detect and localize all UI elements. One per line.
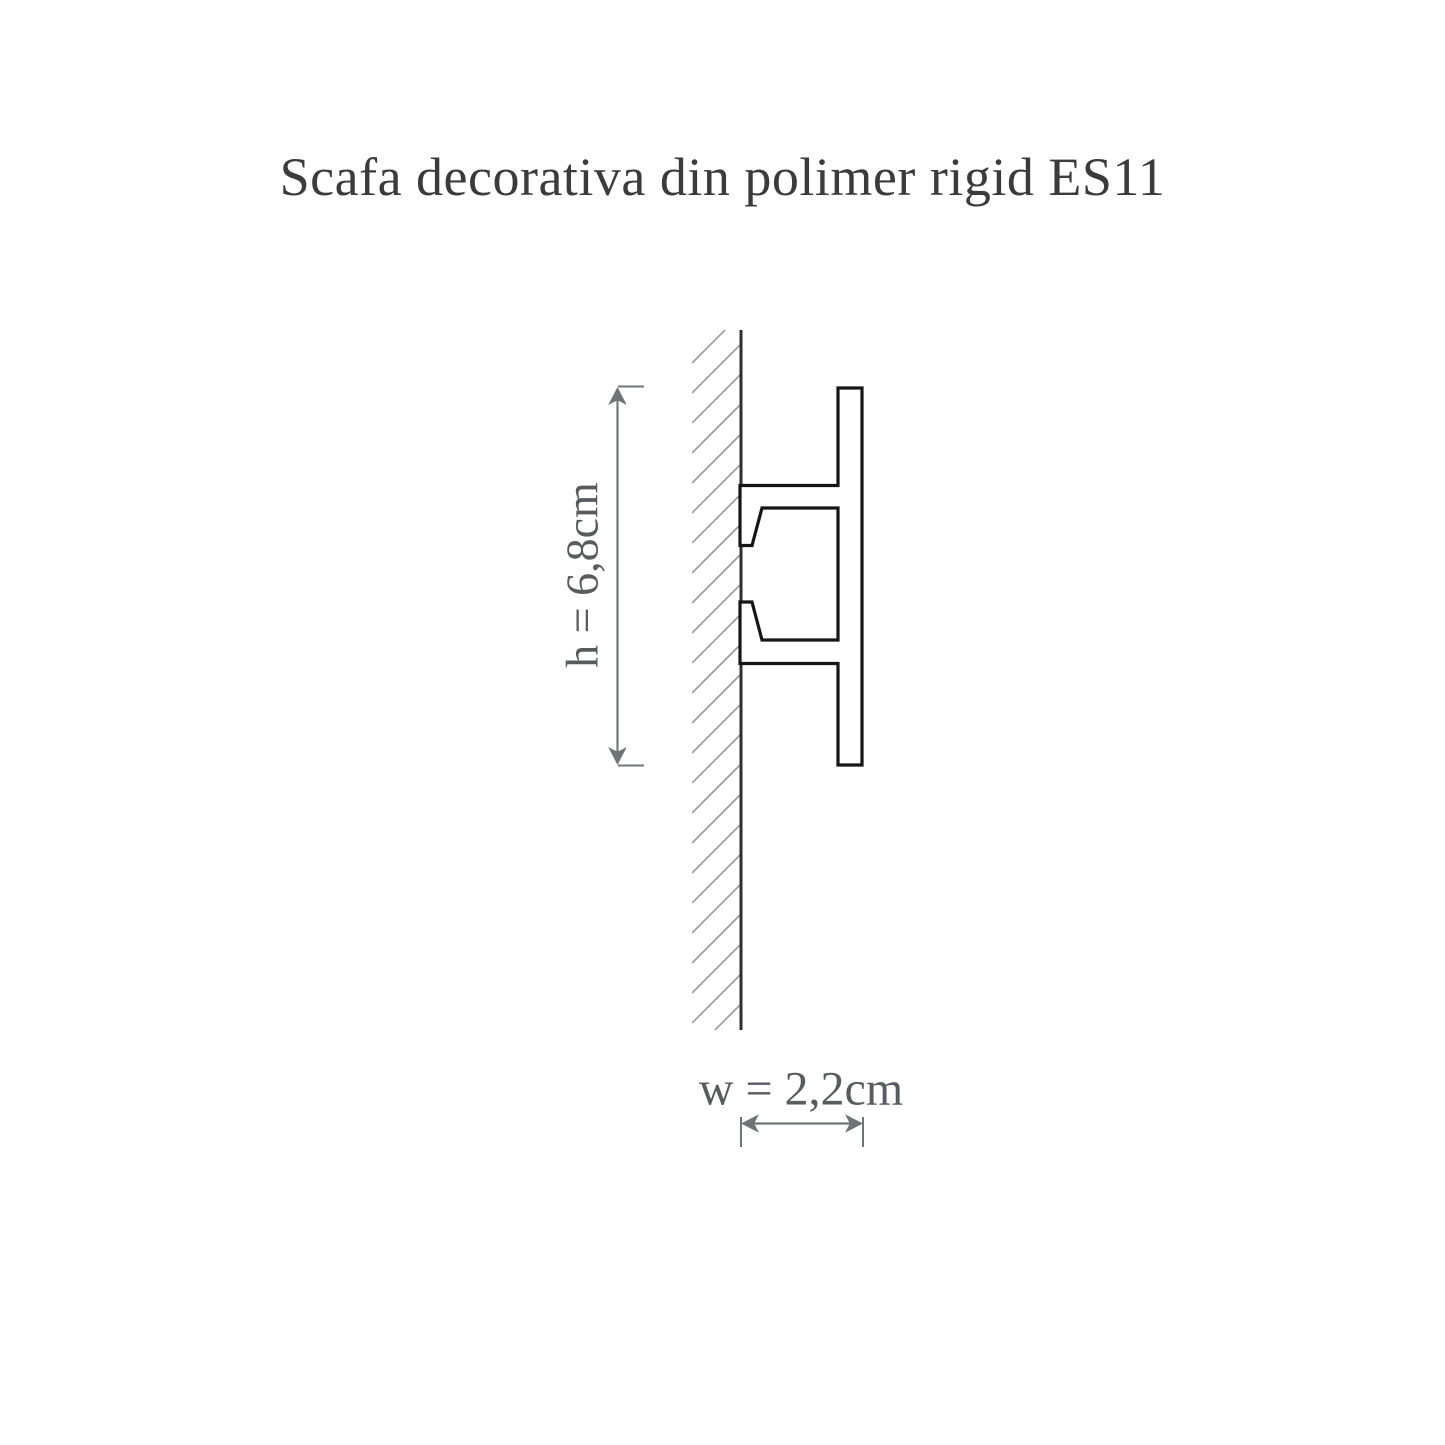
hatch-line: [692, 585, 740, 633]
hatch-line: [692, 615, 740, 663]
hatch-line: [692, 825, 740, 873]
hatch-line: [692, 735, 740, 783]
hatch-line: [692, 795, 740, 843]
hatch-line: [692, 495, 740, 543]
hatch-line: [692, 465, 740, 513]
profile-drawing: [0, 0, 1445, 1445]
diagram-title: Scafa decorativa din polimer rigid ES11: [0, 146, 1445, 208]
hatch-line: [692, 555, 740, 603]
profile-cross-section: [740, 388, 862, 765]
hatch-line: [692, 375, 740, 423]
hatch-line: [692, 855, 740, 903]
hatch-line: [692, 705, 740, 753]
hatch-line: [692, 945, 740, 993]
width-dimension-label: w = 2,2cm: [699, 1062, 903, 1117]
hatch-line: [692, 975, 740, 1023]
hatch-line: [692, 405, 740, 453]
hatch-line: [692, 645, 740, 693]
hatch-line: [692, 315, 740, 363]
height-dimension: [608, 387, 644, 766]
hatch-line: [692, 675, 740, 723]
diagram-canvas: Scafa decorativa din polimer rigid ES11 …: [0, 0, 1445, 1445]
hatch-line: [692, 1005, 740, 1053]
height-dimension-label: h = 6,8cm: [556, 482, 609, 668]
hatch-line: [692, 915, 740, 963]
wall-hatching: [692, 315, 740, 1113]
hatch-line: [692, 525, 740, 573]
hatch-line: [692, 885, 740, 933]
width-dimension: [741, 1114, 863, 1147]
hatch-line: [692, 765, 740, 813]
hatch-line: [692, 435, 740, 483]
hatch-line: [692, 345, 740, 393]
